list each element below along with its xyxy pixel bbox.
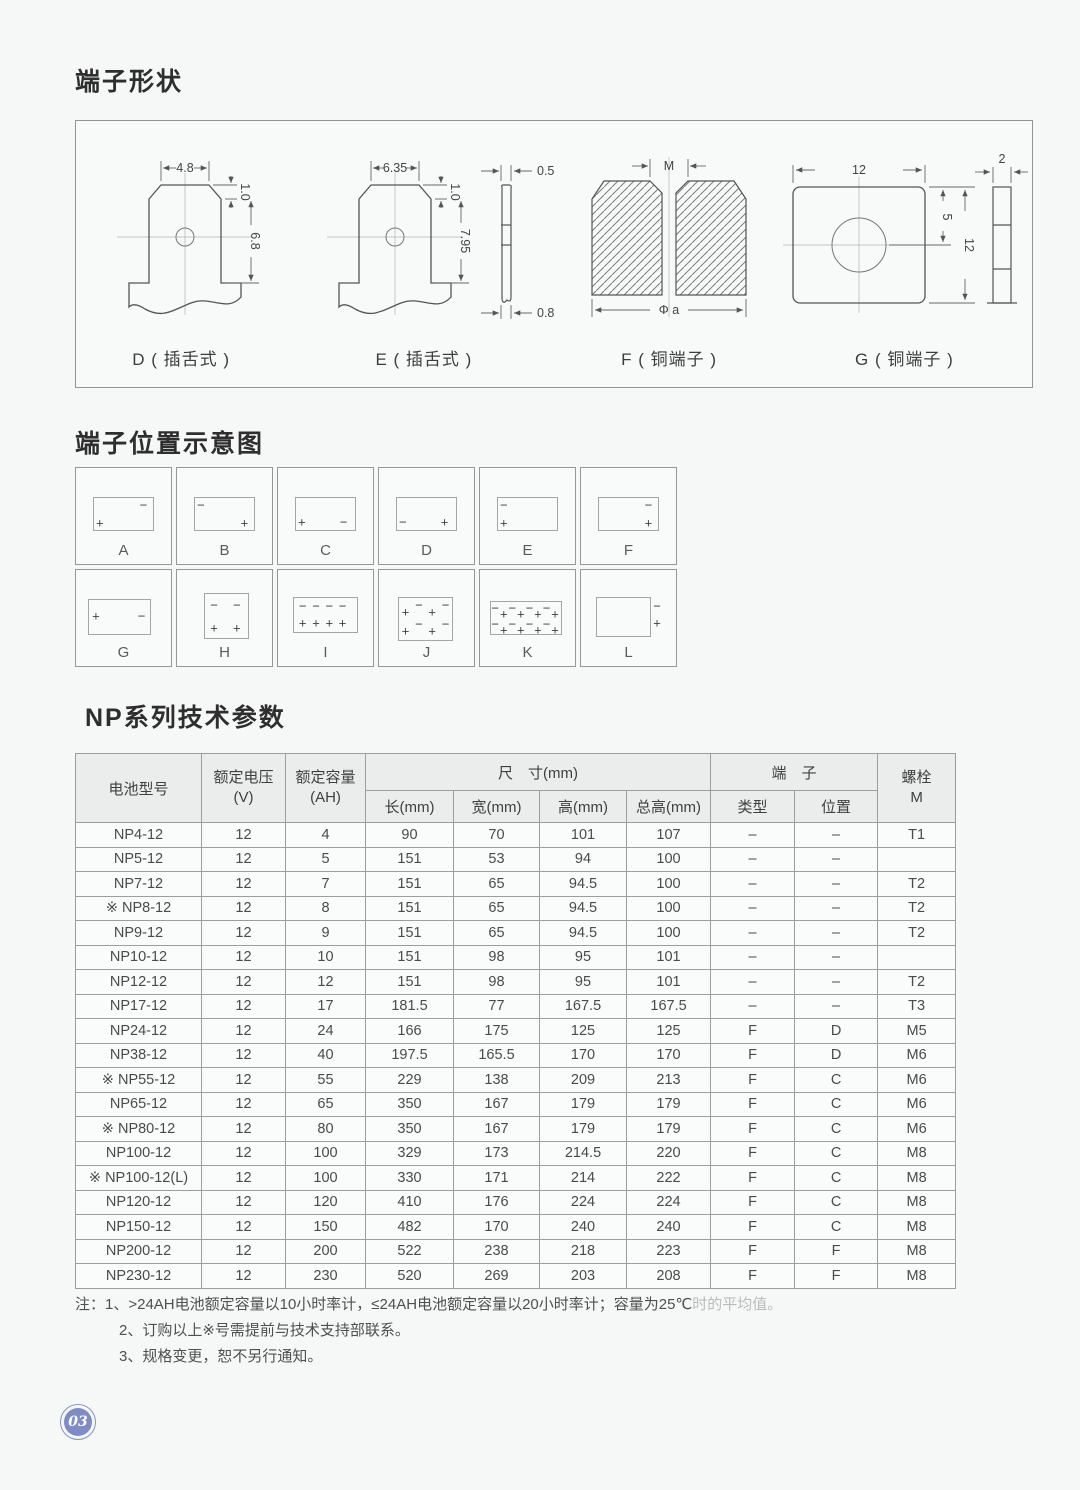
table-cell: F bbox=[711, 1215, 795, 1240]
plus-mark: + bbox=[551, 623, 559, 636]
table-cell: 170 bbox=[540, 1043, 627, 1068]
dim-label: M bbox=[664, 159, 674, 173]
table-cell: 10 bbox=[286, 945, 366, 970]
table-cell: 176 bbox=[454, 1190, 540, 1215]
table-cell: T2 bbox=[878, 872, 956, 897]
minus-mark: − bbox=[299, 600, 307, 613]
table-cell: 12 bbox=[202, 847, 286, 872]
table-cell: 179 bbox=[540, 1092, 627, 1117]
terminal-shapes-panel: 4.8 1.0 6.8 D ( 插舌式 ) bbox=[75, 120, 1033, 388]
table-cell: 329 bbox=[366, 1141, 454, 1166]
table-cell: 7 bbox=[286, 872, 366, 897]
table-cell bbox=[878, 847, 956, 872]
table-cell: – bbox=[795, 896, 878, 921]
table-cell: 350 bbox=[366, 1117, 454, 1142]
col-length: 长(mm) bbox=[366, 791, 454, 823]
plus-mark: + bbox=[210, 621, 218, 634]
table-cell: 70 bbox=[454, 823, 540, 848]
table-cell: 520 bbox=[366, 1264, 454, 1289]
table-cell: – bbox=[795, 823, 878, 848]
table-cell: 12 bbox=[202, 1215, 286, 1240]
table-cell: – bbox=[711, 970, 795, 995]
terminal-shapes-title: 端子形状 bbox=[75, 62, 183, 98]
terminal-f-label: F ( 铜端子 ) bbox=[621, 345, 717, 370]
minus-mark: − bbox=[491, 617, 499, 630]
note-1: 注：1、>24AH电池额定容量以10小时率计，≤24AH电池额定容量以20小时率… bbox=[75, 1292, 985, 1318]
table-cell: 95 bbox=[540, 945, 627, 970]
table-cell: 100 bbox=[627, 921, 711, 946]
minus-mark: − bbox=[491, 602, 499, 615]
table-cell: 12 bbox=[202, 1141, 286, 1166]
terminal-position-cell: −+F bbox=[580, 467, 677, 565]
table-cell: 222 bbox=[627, 1166, 711, 1191]
table-row: NP120-1212120410176224224FCM8 bbox=[76, 1190, 956, 1215]
table-cell: 8 bbox=[286, 896, 366, 921]
table-cell: D bbox=[795, 1043, 878, 1068]
table-cell: – bbox=[711, 847, 795, 872]
table-row: ※ NP8-121281516594.5100––T2 bbox=[76, 896, 956, 921]
table-cell: F bbox=[711, 1068, 795, 1093]
table-cell: 12 bbox=[286, 970, 366, 995]
table-row: NP150-1212150482170240240FCM8 bbox=[76, 1215, 956, 1240]
table-cell: – bbox=[711, 872, 795, 897]
terminal-f-drawing: M Φ a bbox=[564, 147, 774, 337]
table-cell: 220 bbox=[627, 1141, 711, 1166]
table-cell: ※ NP100-12(L) bbox=[76, 1166, 202, 1191]
col-voltage-unit: (V) bbox=[202, 788, 285, 808]
minus-mark: − bbox=[543, 602, 551, 615]
dim-label: 5 bbox=[940, 214, 954, 221]
table-cell: 330 bbox=[366, 1166, 454, 1191]
note-1-text: 注：1、>24AH电池额定容量以10小时率计，≤24AH电池额定容量以20小时率… bbox=[75, 1296, 692, 1313]
table-cell: 173 bbox=[454, 1141, 540, 1166]
table-cell: 100 bbox=[286, 1141, 366, 1166]
table-row: ※ NP100-12(L)12100330171214222FCM8 bbox=[76, 1166, 956, 1191]
table-cell: 125 bbox=[627, 1019, 711, 1044]
table-cell: M6 bbox=[878, 1068, 956, 1093]
np-specs-table: 电池型号 额定电压 (V) 额定容量 (AH) 尺 寸(mm) 端 子 螺栓 M… bbox=[75, 753, 956, 1289]
table-cell: 101 bbox=[627, 945, 711, 970]
table-cell: T1 bbox=[878, 823, 956, 848]
table-cell: 269 bbox=[454, 1264, 540, 1289]
table-row: NP100-1212100329173214.5220FCM8 bbox=[76, 1141, 956, 1166]
table-cell: 12 bbox=[202, 1264, 286, 1289]
table-cell: NP100-12 bbox=[76, 1141, 202, 1166]
terminal-position-cell: +−+−+−+−J bbox=[378, 569, 475, 667]
note-1-faded-text: 时的平均值。 bbox=[692, 1296, 782, 1313]
table-cell: 181.5 bbox=[366, 994, 454, 1019]
table-row: NP7-121271516594.5100––T2 bbox=[76, 872, 956, 897]
table-cell: 101 bbox=[627, 970, 711, 995]
table-cell: NP12-12 bbox=[76, 970, 202, 995]
table-cell: M8 bbox=[878, 1264, 956, 1289]
plus-mark: + bbox=[551, 608, 559, 621]
table-cell: F bbox=[711, 1117, 795, 1142]
minus-mark: − bbox=[500, 499, 508, 512]
table-cell: 350 bbox=[366, 1092, 454, 1117]
table-cell: F bbox=[711, 1043, 795, 1068]
plus-mark: + bbox=[500, 623, 508, 636]
page-number: 03 bbox=[64, 1408, 92, 1436]
table-cell: 12 bbox=[202, 921, 286, 946]
table-cell: 240 bbox=[627, 1215, 711, 1240]
table-cell: 167 bbox=[454, 1092, 540, 1117]
table-cell: C bbox=[795, 1166, 878, 1191]
table-cell: 230 bbox=[286, 1264, 366, 1289]
table-row: ※ NP80-121280350167179179FCM6 bbox=[76, 1117, 956, 1142]
table-cell: 12 bbox=[202, 1190, 286, 1215]
terminal-position-cell-label: I bbox=[278, 644, 373, 661]
table-cell: 410 bbox=[366, 1190, 454, 1215]
table-cell: NP38-12 bbox=[76, 1043, 202, 1068]
table-cell: 240 bbox=[540, 1215, 627, 1240]
table-cell: 150 bbox=[286, 1215, 366, 1240]
col-capacity-label: 额定容量 bbox=[286, 768, 365, 788]
table-cell: – bbox=[795, 921, 878, 946]
terminal-position-cell: +−G bbox=[75, 569, 172, 667]
table-cell: 151 bbox=[366, 896, 454, 921]
table-cell: 203 bbox=[540, 1264, 627, 1289]
terminal-position-cell: −+−+−+−+−+−+−+−+K bbox=[479, 569, 576, 667]
table-cell: C bbox=[795, 1215, 878, 1240]
table-row: NP38-121240197.5165.5170170FDM6 bbox=[76, 1043, 956, 1068]
minus-mark: − bbox=[312, 600, 320, 613]
table-cell: 138 bbox=[454, 1068, 540, 1093]
table-body: NP4-121249070101107––T1NP5-1212515153941… bbox=[76, 823, 956, 1289]
plus-mark: + bbox=[441, 515, 449, 528]
minus-mark: − bbox=[442, 617, 450, 630]
plus-mark: + bbox=[96, 516, 104, 529]
table-cell: 125 bbox=[540, 1019, 627, 1044]
table-cell: 12 bbox=[202, 872, 286, 897]
minus-mark: − bbox=[340, 515, 348, 528]
col-terminal-type: 类型 bbox=[711, 791, 795, 823]
table-cell: 209 bbox=[540, 1068, 627, 1093]
minus-mark: − bbox=[399, 515, 407, 528]
table-cell: – bbox=[711, 896, 795, 921]
table-cell: T3 bbox=[878, 994, 956, 1019]
table-cell: ※ NP80-12 bbox=[76, 1117, 202, 1142]
minus-mark: − bbox=[526, 617, 534, 630]
plus-mark: + bbox=[653, 616, 661, 629]
table-cell: 53 bbox=[454, 847, 540, 872]
table-row: NP4-121249070101107––T1 bbox=[76, 823, 956, 848]
table-cell: 17 bbox=[286, 994, 366, 1019]
col-bolt-label: 螺栓 bbox=[878, 768, 955, 788]
col-terminal-position: 位置 bbox=[795, 791, 878, 823]
table-cell: 151 bbox=[366, 921, 454, 946]
table-cell: NP9-12 bbox=[76, 921, 202, 946]
table-cell: ※ NP55-12 bbox=[76, 1068, 202, 1093]
table-cell: 12 bbox=[202, 945, 286, 970]
dim-label: 4.8 bbox=[176, 161, 193, 175]
plus-mark: + bbox=[312, 616, 320, 629]
minus-mark: − bbox=[140, 499, 148, 512]
table-cell: 214.5 bbox=[540, 1141, 627, 1166]
col-group-dimensions: 尺 寸(mm) bbox=[366, 754, 711, 791]
terminal-position-cell-label: L bbox=[581, 644, 676, 661]
minus-mark: − bbox=[339, 600, 347, 613]
col-group-terminal: 端 子 bbox=[711, 754, 878, 791]
table-cell: 4 bbox=[286, 823, 366, 848]
table-cell: M8 bbox=[878, 1141, 956, 1166]
dim-label: 1.0 bbox=[448, 183, 462, 200]
table-cell: 5 bbox=[286, 847, 366, 872]
col-voltage: 额定电压 (V) bbox=[202, 754, 286, 823]
terminal-e-drawing: 6.35 1.0 7.95 0.5 0.8 bbox=[289, 147, 559, 337]
dim-label: 12 bbox=[852, 163, 866, 177]
terminal-position-cell: −−++H bbox=[176, 569, 273, 667]
table-cell: 12 bbox=[202, 1068, 286, 1093]
table-cell: 100 bbox=[286, 1166, 366, 1191]
terminal-position-cell-label: A bbox=[76, 542, 171, 559]
minus-mark: − bbox=[197, 499, 205, 512]
table-cell: T2 bbox=[878, 896, 956, 921]
plus-mark: + bbox=[402, 625, 410, 638]
table-notes: 注：1、>24AH电池额定容量以10小时率计，≤24AH电池额定容量以20小时率… bbox=[75, 1292, 985, 1370]
minus-mark: − bbox=[326, 600, 334, 613]
table-cell: C bbox=[795, 1117, 878, 1142]
table-cell: C bbox=[795, 1092, 878, 1117]
diagram-terminal-e: 6.35 1.0 7.95 0.5 0.8 E ( 插舌式 ) bbox=[289, 147, 559, 370]
terminal-e-label: E ( 插舌式 ) bbox=[375, 345, 472, 370]
table-cell: F bbox=[711, 1239, 795, 1264]
table-cell: 12 bbox=[202, 1166, 286, 1191]
terminal-d-drawing: 4.8 1.0 6.8 bbox=[79, 147, 284, 337]
table-cell: 12 bbox=[202, 1019, 286, 1044]
table-cell: 522 bbox=[366, 1239, 454, 1264]
table-cell: 94 bbox=[540, 847, 627, 872]
table-cell: 175 bbox=[454, 1019, 540, 1044]
dim-label: 6.35 bbox=[383, 161, 407, 175]
table-cell: 65 bbox=[454, 896, 540, 921]
table-cell: M8 bbox=[878, 1215, 956, 1240]
table-cell: 12 bbox=[202, 896, 286, 921]
table-row: ※ NP55-121255229138209213FCM6 bbox=[76, 1068, 956, 1093]
table-cell: 167 bbox=[454, 1117, 540, 1142]
plus-mark: + bbox=[298, 515, 306, 528]
terminal-position-cell: −+L bbox=[580, 569, 677, 667]
terminal-g-drawing: 12 5 12 2 bbox=[779, 147, 1029, 337]
table-cell: 120 bbox=[286, 1190, 366, 1215]
table-cell: NP65-12 bbox=[76, 1092, 202, 1117]
note-2: 2、订购以上※号需提前与技术支持部联系。 bbox=[75, 1318, 985, 1344]
col-voltage-label: 额定电压 bbox=[202, 768, 285, 788]
table-row: NP10-1212101519895101–– bbox=[76, 945, 956, 970]
table-cell: M5 bbox=[878, 1019, 956, 1044]
table-cell: F bbox=[711, 1264, 795, 1289]
table-cell: F bbox=[711, 1019, 795, 1044]
table-cell: 482 bbox=[366, 1215, 454, 1240]
terminal-position-cell-label: H bbox=[177, 644, 272, 661]
terminal-position-cell-label: K bbox=[480, 644, 575, 661]
table-cell: 151 bbox=[366, 970, 454, 995]
minus-mark: − bbox=[645, 499, 653, 512]
table-cell: T2 bbox=[878, 970, 956, 995]
terminal-position-grid: −+A−+B+−C−+D−+E−+F+−G−−++H−−−−++++I+−+−+… bbox=[75, 467, 677, 667]
table-cell: 40 bbox=[286, 1043, 366, 1068]
col-total-height: 总高(mm) bbox=[627, 791, 711, 823]
table-cell: 214 bbox=[540, 1166, 627, 1191]
table-cell: 12 bbox=[202, 1043, 286, 1068]
col-height: 高(mm) bbox=[540, 791, 627, 823]
table-cell: 100 bbox=[627, 896, 711, 921]
table-cell: M8 bbox=[878, 1239, 956, 1264]
table-cell: 223 bbox=[627, 1239, 711, 1264]
table-cell: NP7-12 bbox=[76, 872, 202, 897]
table-cell: 90 bbox=[366, 823, 454, 848]
table-cell: 65 bbox=[286, 1092, 366, 1117]
dim-label: 2 bbox=[999, 152, 1006, 166]
table-cell: 218 bbox=[540, 1239, 627, 1264]
table-cell: 107 bbox=[627, 823, 711, 848]
plus-mark: + bbox=[299, 616, 307, 629]
table-cell: 94.5 bbox=[540, 872, 627, 897]
minus-mark: − bbox=[233, 598, 241, 611]
terminal-position-cell-label: E bbox=[480, 542, 575, 559]
table-cell: 166 bbox=[366, 1019, 454, 1044]
table-cell: 9 bbox=[286, 921, 366, 946]
table-row: NP12-1212121519895101––T2 bbox=[76, 970, 956, 995]
terminal-position-cell-label: C bbox=[278, 542, 373, 559]
minus-mark: − bbox=[442, 598, 450, 611]
terminal-d-label: D ( 插舌式 ) bbox=[132, 345, 230, 370]
terminal-position-cell-label: B bbox=[177, 542, 272, 559]
minus-mark: − bbox=[509, 602, 517, 615]
plus-mark: + bbox=[92, 610, 100, 623]
table-cell: 197.5 bbox=[366, 1043, 454, 1068]
plus-mark: + bbox=[534, 608, 542, 621]
terminal-g-label: G ( 铜端子 ) bbox=[855, 345, 954, 370]
minus-mark: − bbox=[210, 598, 218, 611]
terminal-position-cell-label: J bbox=[379, 644, 474, 661]
table-cell: M6 bbox=[878, 1043, 956, 1068]
battery-outline bbox=[596, 597, 651, 637]
table-cell: 80 bbox=[286, 1117, 366, 1142]
dim-label: Φ a bbox=[659, 303, 679, 317]
table-cell: – bbox=[795, 970, 878, 995]
table-cell: ※ NP8-12 bbox=[76, 896, 202, 921]
minus-mark: − bbox=[415, 617, 423, 630]
dim-label: 12 bbox=[962, 238, 976, 252]
table-cell: – bbox=[795, 872, 878, 897]
table-cell: 151 bbox=[366, 847, 454, 872]
table-cell: F bbox=[795, 1239, 878, 1264]
note-3: 3、规格变更，恕不另行通知。 bbox=[75, 1344, 985, 1370]
table-cell: NP4-12 bbox=[76, 823, 202, 848]
table-cell: NP230-12 bbox=[76, 1264, 202, 1289]
table-cell: 12 bbox=[202, 823, 286, 848]
table-cell: 94.5 bbox=[540, 896, 627, 921]
plus-mark: + bbox=[428, 606, 436, 619]
table-cell: 200 bbox=[286, 1239, 366, 1264]
table-row: NP65-121265350167179179FCM6 bbox=[76, 1092, 956, 1117]
plus-mark: + bbox=[500, 516, 508, 529]
table-cell: – bbox=[795, 847, 878, 872]
diagram-terminal-f: M Φ a F ( 铜端子 ) bbox=[564, 147, 774, 370]
col-width: 宽(mm) bbox=[454, 791, 540, 823]
plus-mark: + bbox=[500, 608, 508, 621]
plus-mark: + bbox=[517, 623, 525, 636]
table-cell: 170 bbox=[627, 1043, 711, 1068]
table-cell: T2 bbox=[878, 921, 956, 946]
table-cell: D bbox=[795, 1019, 878, 1044]
minus-mark: − bbox=[653, 600, 661, 613]
table-cell: C bbox=[795, 1068, 878, 1093]
table-cell: 12 bbox=[202, 1092, 286, 1117]
table-cell: 100 bbox=[627, 872, 711, 897]
minus-mark: − bbox=[543, 617, 551, 630]
table-cell: F bbox=[711, 1092, 795, 1117]
table-cell: – bbox=[795, 945, 878, 970]
table-cell: C bbox=[795, 1190, 878, 1215]
table-cell: – bbox=[795, 994, 878, 1019]
plus-mark: + bbox=[326, 616, 334, 629]
table-cell: 208 bbox=[627, 1264, 711, 1289]
terminal-position-cell-label: F bbox=[581, 542, 676, 559]
plus-mark: + bbox=[428, 625, 436, 638]
np-table-title: NP系列技术参数 bbox=[85, 698, 286, 734]
table-cell: C bbox=[795, 1141, 878, 1166]
table-cell: 55 bbox=[286, 1068, 366, 1093]
table-cell: NP17-12 bbox=[76, 994, 202, 1019]
diagram-terminal-d: 4.8 1.0 6.8 D ( 插舌式 ) bbox=[79, 147, 284, 370]
table-cell: 98 bbox=[454, 945, 540, 970]
minus-mark: − bbox=[526, 602, 534, 615]
terminal-position-cell: +−C bbox=[277, 467, 374, 565]
table-row: NP5-121251515394100–– bbox=[76, 847, 956, 872]
table-row: NP230-1212230520269203208FFM8 bbox=[76, 1264, 956, 1289]
terminal-position-cell-label: G bbox=[76, 644, 171, 661]
table-cell: 95 bbox=[540, 970, 627, 995]
table-cell: – bbox=[711, 921, 795, 946]
plus-mark: + bbox=[233, 621, 241, 634]
terminal-position-cell: −+D bbox=[378, 467, 475, 565]
table-header: 电池型号 额定电压 (V) 额定容量 (AH) 尺 寸(mm) 端 子 螺栓 M… bbox=[76, 754, 956, 823]
table-cell: M6 bbox=[878, 1117, 956, 1142]
table-cell: NP10-12 bbox=[76, 945, 202, 970]
table-cell: NP24-12 bbox=[76, 1019, 202, 1044]
table-row: NP9-121291516594.5100––T2 bbox=[76, 921, 956, 946]
table-cell: 167.5 bbox=[627, 994, 711, 1019]
table-cell: 12 bbox=[202, 1117, 286, 1142]
table-cell: F bbox=[711, 1166, 795, 1191]
dim-label: 0.5 bbox=[537, 164, 554, 178]
table-cell: 179 bbox=[627, 1092, 711, 1117]
table-cell: 101 bbox=[540, 823, 627, 848]
table-cell: NP200-12 bbox=[76, 1239, 202, 1264]
table-cell: F bbox=[711, 1190, 795, 1215]
table-cell: F bbox=[711, 1141, 795, 1166]
table-cell: 151 bbox=[366, 945, 454, 970]
col-capacity-unit: (AH) bbox=[286, 788, 365, 808]
terminal-position-cell-label: D bbox=[379, 542, 474, 559]
table-row: NP200-1212200522238218223FFM8 bbox=[76, 1239, 956, 1264]
plus-mark: + bbox=[402, 606, 410, 619]
table-cell: – bbox=[711, 945, 795, 970]
col-bolt-unit: M bbox=[878, 788, 955, 808]
plus-mark: + bbox=[645, 516, 653, 529]
table-cell: 12 bbox=[202, 1239, 286, 1264]
dim-label: 0.8 bbox=[537, 306, 554, 320]
table-cell: 170 bbox=[454, 1215, 540, 1240]
plus-mark: + bbox=[339, 616, 347, 629]
table-cell: 24 bbox=[286, 1019, 366, 1044]
table-cell: 224 bbox=[627, 1190, 711, 1215]
terminal-positions-title: 端子位置示意图 bbox=[75, 424, 264, 460]
table-cell: 165.5 bbox=[454, 1043, 540, 1068]
table-cell: 65 bbox=[454, 872, 540, 897]
